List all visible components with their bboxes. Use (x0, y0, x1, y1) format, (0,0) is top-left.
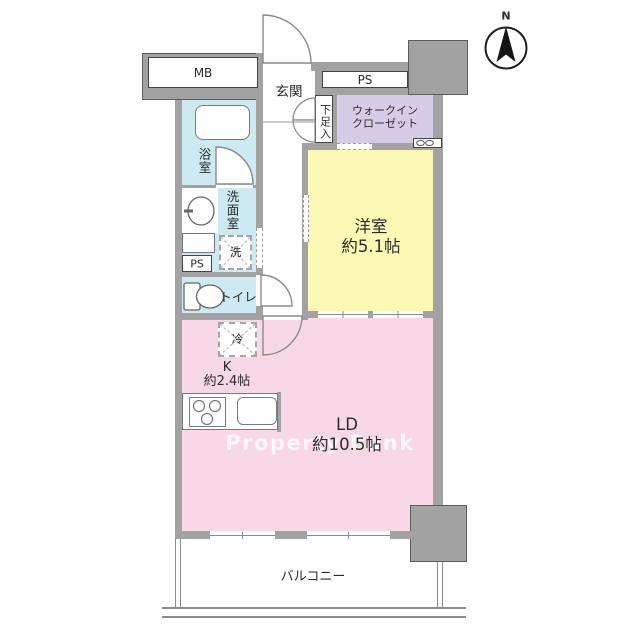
label-ps-small: PS (190, 258, 204, 271)
label-genkan: 玄関 (276, 80, 303, 100)
label-western-room: 洋室 約5.1帖 (341, 217, 400, 257)
label-western-room-name: 洋室 (341, 217, 400, 237)
ground-lines (162, 608, 466, 617)
label-washroom: 洗面室 (223, 190, 242, 231)
entrance-door-arc (263, 15, 311, 63)
label-mb: MB (194, 66, 213, 80)
bath-door-arc (216, 147, 253, 184)
label-north: N (501, 10, 510, 23)
label-balcony: バルコニー (281, 566, 346, 585)
label-ld-name: LD (312, 415, 382, 435)
label-kitchen-size: 約2.4帖 (204, 375, 251, 389)
label-fridge: 冷 (232, 331, 244, 347)
label-western-room-size: 約5.1帖 (341, 237, 400, 257)
vent-oval-icon (417, 140, 425, 145)
label-kitchen-name: K (204, 361, 251, 375)
shoe-door-arc-lower (293, 120, 315, 142)
label-toilet: トイレ (219, 287, 257, 306)
toilet-door-arc (261, 275, 292, 306)
label-washer: 洗 (230, 244, 242, 260)
floor-plan: Property Bank N MB PS 玄関 下足入 ウォークイン クローゼ… (0, 0, 640, 640)
label-ld-size: 約10.5帖 (312, 435, 382, 455)
plan-linework (0, 0, 640, 640)
label-walk-in-closet: ウォークイン クローゼット (352, 104, 418, 130)
label-walk-in-closet-line2: クローゼット (352, 117, 418, 130)
ld-door-arc (263, 316, 302, 355)
label-ps-top: PS (358, 73, 373, 87)
vent-oval-icon (426, 140, 434, 145)
shoe-door-arc-upper (293, 98, 315, 120)
label-shoe-box: 下足入 (317, 104, 333, 140)
label-walk-in-closet-line1: ウォークイン (352, 104, 418, 117)
label-ld: LD 約10.5帖 (312, 415, 382, 455)
stove-burners-icon (194, 401, 221, 425)
label-bath: 浴室 (195, 148, 214, 175)
label-kitchen: K 約2.4帖 (204, 361, 251, 389)
